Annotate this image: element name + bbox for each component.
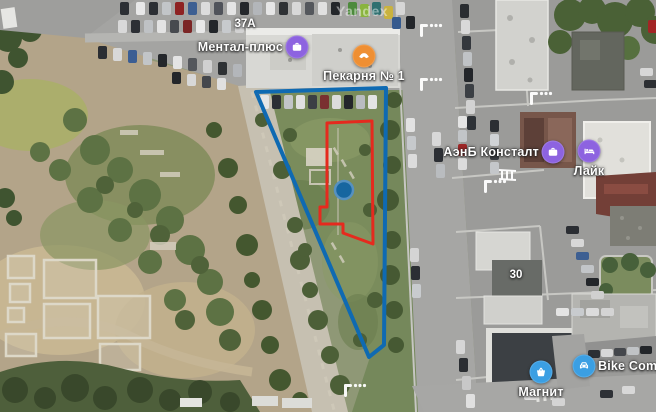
poi-label: Пекарня № 1 [323, 69, 405, 83]
car-icon[interactable] [573, 355, 596, 378]
briefcase-icon[interactable] [542, 141, 565, 164]
location-marker[interactable] [335, 181, 353, 199]
poi-label: Bike Compan [598, 359, 656, 373]
satellite-imagery [0, 0, 656, 412]
poi-label: Лайк [574, 164, 605, 178]
poi-label: Ментал-плюс [198, 40, 283, 54]
hotel-icon[interactable] [578, 140, 601, 163]
bakery-icon[interactable] [353, 45, 376, 68]
poi-label: Магнит [518, 385, 563, 399]
basket-icon[interactable] [530, 361, 553, 384]
poi-label: АэнБ Консталт [443, 145, 539, 159]
satellite-map[interactable]: Ментал-плюсПекарня № 1АэнБ КонсталтЛайкМ… [0, 0, 656, 412]
briefcase-icon[interactable] [286, 36, 309, 59]
